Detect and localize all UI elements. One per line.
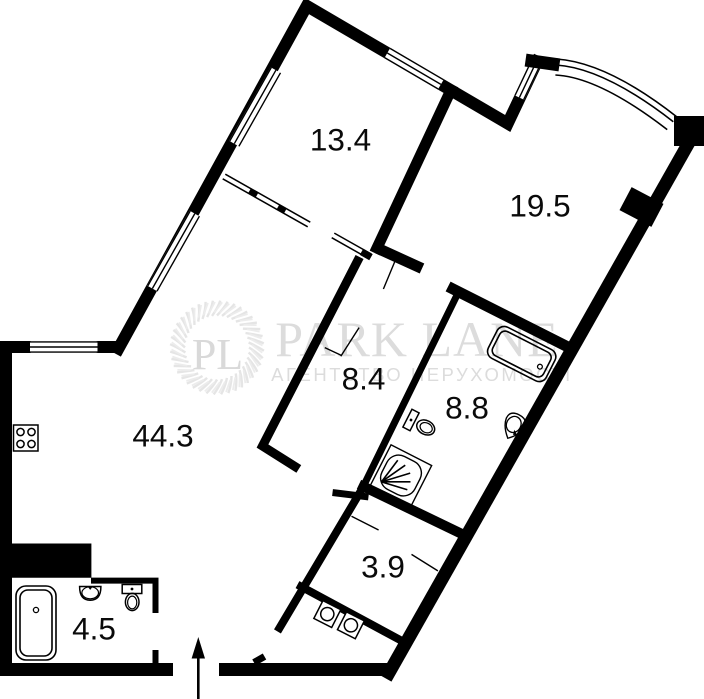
svg-text:8.8: 8.8 (445, 390, 489, 426)
svg-text:8.4: 8.4 (342, 361, 386, 397)
svg-text:3.9: 3.9 (361, 549, 405, 585)
svg-text:19.5: 19.5 (509, 188, 570, 224)
svg-text:4.5: 4.5 (72, 611, 116, 647)
svg-text:13.4: 13.4 (310, 122, 371, 158)
svg-text:PL: PL (192, 330, 243, 379)
svg-text:44.3: 44.3 (132, 418, 193, 454)
